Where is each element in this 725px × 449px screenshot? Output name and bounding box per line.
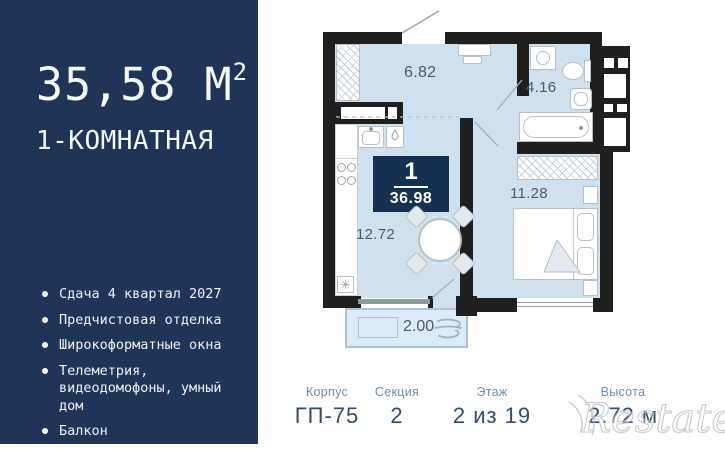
square-meter-sup: 2 [233, 58, 248, 86]
info-label: Этаж [442, 385, 542, 399]
info-value: 2 из 19 [442, 403, 542, 429]
wall-bathroom-bottom [517, 142, 602, 154]
balcony-cabinet [358, 317, 398, 338]
badge-divider [394, 186, 428, 188]
wall-bottom-living-a [323, 296, 361, 308]
kitchen-living-area-label: 12.72 [356, 226, 395, 243]
badge-total-area: 36.98 [373, 190, 449, 208]
cabinet-door [388, 107, 397, 119]
wall-corner-post [456, 296, 477, 316]
living-window [358, 299, 430, 304]
hallway-wardrobe [336, 44, 360, 101]
radiator-symbol: ✳ [337, 276, 354, 293]
bullet-dot-icon [42, 317, 48, 323]
balcony: 2.00 [345, 308, 468, 348]
badge-room-count: 1 [373, 159, 449, 185]
toilet-tank [584, 60, 591, 82]
bed-headboard-line [573, 209, 574, 279]
info-label: Корпус [287, 385, 367, 399]
hallway-area-label: 6.82 [404, 64, 436, 82]
total-area-value: 35,58 М [36, 58, 233, 111]
sink-basin [362, 131, 380, 145]
cabinet-door [341, 107, 385, 119]
shaft-opening [604, 118, 626, 146]
stove [336, 161, 358, 193]
bullet-dot-icon [42, 428, 48, 434]
bullet-dot-icon [42, 291, 48, 297]
shaft-opening [604, 104, 613, 112]
total-area-title: 35,58 М2 [36, 58, 248, 111]
bedroom-area-label: 11.28 [510, 185, 548, 202]
info-value: ГП-75 [287, 403, 367, 429]
floor-plan: 2.00 ✳ 1 36.98 12.72 [322, 0, 725, 375]
feature-item: Предчистовая отделка [42, 312, 251, 330]
info-section: Секция 2 [357, 385, 437, 429]
bullet-dot-icon [42, 342, 48, 348]
kitchen-counter [335, 124, 358, 296]
info-floor: Этаж 2 из 19 [442, 385, 542, 429]
wall-right-bedroom [600, 148, 613, 312]
feature-list: Сдача 4 квартал 2027 Предчистовая отделк… [42, 286, 251, 449]
tub-drain [579, 126, 583, 130]
entry-stool [463, 56, 482, 64]
watermark-logo: Restate [561, 388, 725, 446]
wall-bottom-bedroom-a [475, 298, 517, 312]
bedroom-window [517, 298, 593, 312]
shaft-opening [617, 104, 627, 112]
faucet [369, 127, 373, 131]
toilet-bowl [562, 62, 584, 80]
info-value: 2 [357, 403, 437, 429]
bed [513, 208, 598, 280]
info-building: Корпус ГП-75 [287, 385, 367, 429]
bathroom-area-label: 4.16 [526, 79, 556, 96]
entrance-door-swing [402, 11, 439, 33]
feature-item: Балкон [42, 423, 251, 441]
shaft-opening [604, 58, 614, 68]
bedroom-wardrobe [517, 156, 598, 180]
hallway-cabinet [323, 102, 403, 124]
dining-table [418, 218, 462, 262]
bathroom-sink [570, 88, 592, 110]
pillow [577, 213, 594, 241]
balcony-area-label: 2.00 [403, 318, 434, 336]
apartment-badge: 1 36.98 [373, 156, 449, 212]
bullet-dot-icon [42, 368, 48, 374]
wall-left [323, 32, 335, 308]
feature-item: Широкоформатные окна [42, 337, 251, 355]
washer-drum [536, 51, 550, 65]
wall-top-right [445, 32, 602, 44]
kitchen-sink [358, 126, 384, 148]
bathtub [519, 112, 593, 142]
entry-console-table [458, 44, 491, 56]
sink-basin [574, 92, 588, 106]
shaft-opening [604, 74, 626, 98]
nightstand [583, 280, 598, 296]
nightstand [583, 186, 598, 204]
feature-item: Сдача 4 квартал 2027 [42, 286, 251, 304]
window-glass-lines [517, 302, 593, 307]
apartment-type-title: 1-КОМНАТНАЯ [36, 126, 214, 156]
counter-divider [335, 158, 358, 159]
feature-item: Телеметрия, видеодомофоны, умный дом [42, 363, 251, 416]
pillow [577, 247, 594, 275]
summary-sidebar: 35,58 М2 1-КОМНАТНАЯ Сдача 4 квартал 202… [0, 0, 258, 444]
info-label: Секция [357, 385, 437, 399]
watermark-text: Restate [580, 396, 725, 442]
shaft-opening [618, 58, 628, 68]
washing-machine [530, 46, 556, 70]
water-heater-box [386, 126, 404, 148]
